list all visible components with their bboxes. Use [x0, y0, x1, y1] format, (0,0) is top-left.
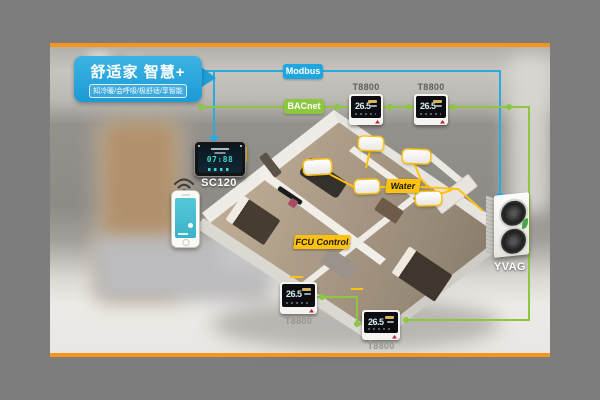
button-row [286, 302, 309, 304]
thermostat-screen: 26.5 [351, 96, 381, 118]
mode-indicator [433, 100, 442, 103]
brand-logo-icon [392, 335, 397, 339]
bacnet-line-bottom [316, 297, 362, 324]
phone-screen [175, 198, 196, 238]
thermostat-screen: 26.5 [364, 312, 398, 333]
leaf-icon [522, 218, 528, 229]
screen-caption-bar [211, 148, 229, 150]
button-row [420, 113, 441, 115]
callout-tagline: 知冷暖/会呼吸/极舒适/享智能 [89, 84, 187, 98]
bacnet-junction-dots [198, 104, 512, 327]
mode-indicator [385, 316, 394, 319]
app-icon [188, 223, 193, 228]
thermostat-top-left: 26.5 [349, 94, 383, 125]
brand-logo-icon [309, 309, 314, 313]
screen-caption-bar [215, 152, 226, 154]
mode-indicator [302, 288, 311, 291]
sc120-screen: 07:88 [198, 145, 242, 173]
sc120-time-display: 07:88 [198, 155, 242, 164]
status-indicator [435, 105, 442, 107]
thermostat-screen: 26.5 [282, 284, 315, 307]
yvag-outdoor-unit [486, 194, 530, 258]
frame-line-bottom [50, 353, 550, 357]
phone-speaker [181, 194, 190, 196]
bacnet-label: BACnet [284, 99, 324, 114]
button-row [368, 328, 392, 330]
app-text-bar [178, 233, 188, 235]
sc120-controller: 07:88 [194, 141, 246, 177]
corner-led [198, 145, 200, 147]
touch-key-row [208, 168, 232, 171]
fcu-cassette-3 [355, 180, 379, 194]
mode-indicator [368, 100, 377, 103]
water-pipes [246, 147, 483, 289]
thermostat-model-label: T8800 [362, 341, 400, 351]
status-indicator [304, 293, 311, 295]
callout-bubble: 舒适家 智慧+ 知冷暖/会呼吸/极舒适/享智能 [74, 56, 202, 102]
fcu-control-label: FCU Control [293, 235, 351, 249]
fcu-cassette-5 [416, 192, 441, 206]
home-button [182, 239, 189, 246]
status-indicator [387, 321, 394, 323]
unit-front-panel [494, 192, 529, 258]
fcu-cassette-2 [359, 137, 383, 151]
thermostat-bottom-left: 26.5 [280, 282, 317, 314]
yvag-label: YVAG [488, 261, 532, 273]
thermostat-model-label: T8800 [414, 82, 448, 92]
button-row [355, 113, 376, 115]
thermostat-model-label: T8800 [349, 82, 383, 92]
thermostat-model-label: T8800 [280, 316, 317, 326]
callout-title: 舒适家 智慧+ [91, 61, 186, 82]
sc120-label: SC120 [196, 177, 242, 189]
fcu-cassette-4 [403, 150, 430, 164]
fcu-cassette-1 [304, 159, 332, 174]
thermostat-bottom-right: 26.5 [362, 310, 400, 340]
temp-reading: 26.5 [368, 317, 384, 327]
promo-diagram: 舒适家 智慧+ 知冷暖/会呼吸/极舒适/享智能 Modbus BACnet Wa… [0, 0, 600, 400]
modbus-label: Modbus [283, 64, 323, 79]
corner-led [240, 145, 242, 147]
brand-logo-icon [440, 120, 445, 124]
fan-icon [499, 225, 528, 257]
smartphone [171, 190, 200, 248]
thermostat-top-right: 26.5 [414, 94, 448, 125]
thermostat-screen: 26.5 [416, 96, 446, 118]
status-indicator [370, 105, 377, 107]
frame-line-top [50, 43, 550, 47]
water-label: Water [385, 179, 421, 193]
temp-reading: 26.5 [286, 289, 302, 299]
brand-logo-icon [375, 120, 380, 124]
